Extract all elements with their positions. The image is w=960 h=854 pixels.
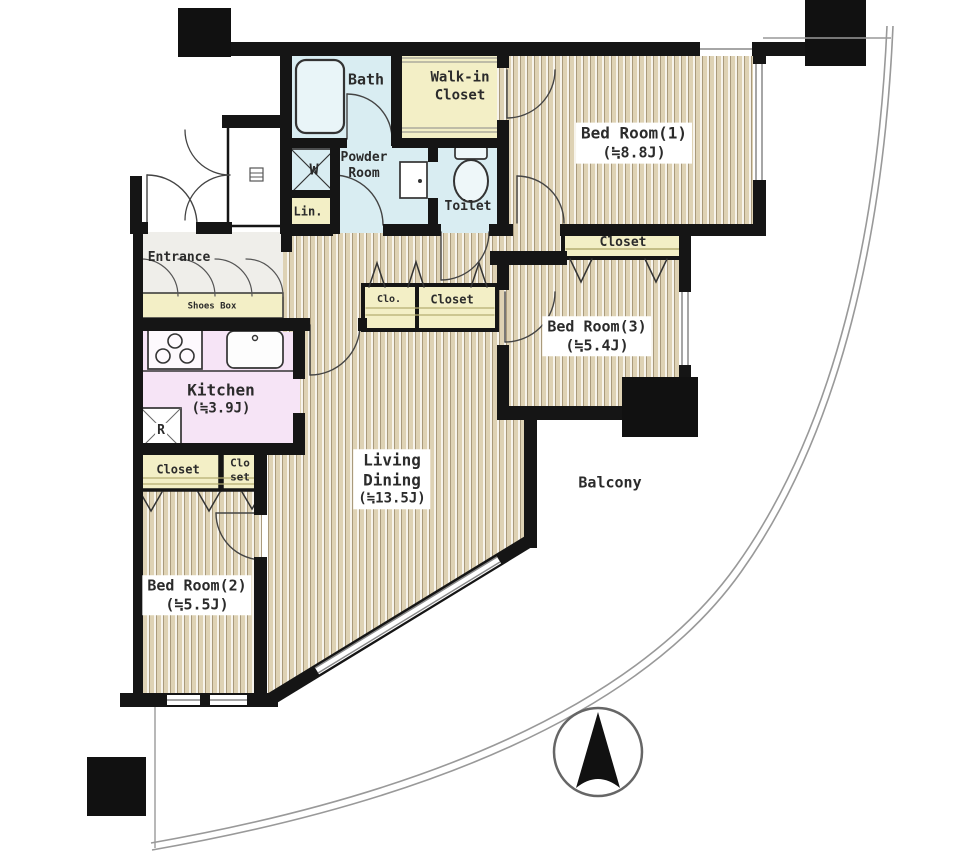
floor-plan-canvas xyxy=(0,0,960,854)
shoes-box-label: Shoes Box xyxy=(188,301,237,312)
floor-plan: Bath Walk-in Closet Powder Room W Lin. T… xyxy=(0,0,960,854)
hall-closet-small-label: Clo. xyxy=(377,294,401,307)
powder-room-label: Powder Room xyxy=(341,150,388,183)
stove xyxy=(148,329,202,369)
bath-label: Bath xyxy=(348,71,384,90)
pillar-top-right xyxy=(805,0,866,66)
living-dining-label: Living Dining (≒13.5J) xyxy=(353,449,430,509)
bedroom2-closet2-label: Clo set xyxy=(230,456,250,484)
bedroom3-label: Bed Room(3) (≒5.4J) xyxy=(542,316,651,356)
refrigerator-label: R xyxy=(155,423,167,439)
bedroom1-closet-label: Closet xyxy=(600,235,647,251)
pillar-mid-right xyxy=(622,377,698,437)
pillar-bottom-left xyxy=(87,757,146,816)
balcony-label: Balcony xyxy=(578,474,641,493)
bedroom1-label: Bed Room(1) (≒8.8J) xyxy=(576,123,692,164)
bedroom2-closet-label: Closet xyxy=(156,463,199,478)
entrance-label: Entrance xyxy=(148,250,211,266)
bedroom2-label: Bed Room(2) (≒5.5J) xyxy=(142,575,251,615)
storage-door-arc xyxy=(185,175,230,220)
toilet-label: Toilet xyxy=(445,199,492,215)
pillar-top-left xyxy=(178,8,231,57)
bathtub xyxy=(296,60,344,133)
kitchen-sink xyxy=(227,331,283,368)
north-arrow-icon xyxy=(554,708,642,796)
door-leaf xyxy=(400,162,427,198)
toilet-bowl xyxy=(454,160,488,202)
hall-closet-label: Closet xyxy=(430,293,473,308)
walk-in-closet-label: Walk-in Closet xyxy=(430,70,489,105)
kitchen-label: Kitchen (≒3.9J) xyxy=(187,380,254,418)
washer-label: W xyxy=(309,161,318,180)
storage-door-arc xyxy=(185,130,230,175)
linen-label: Lin. xyxy=(294,205,323,220)
storage-cabinet xyxy=(228,126,282,226)
